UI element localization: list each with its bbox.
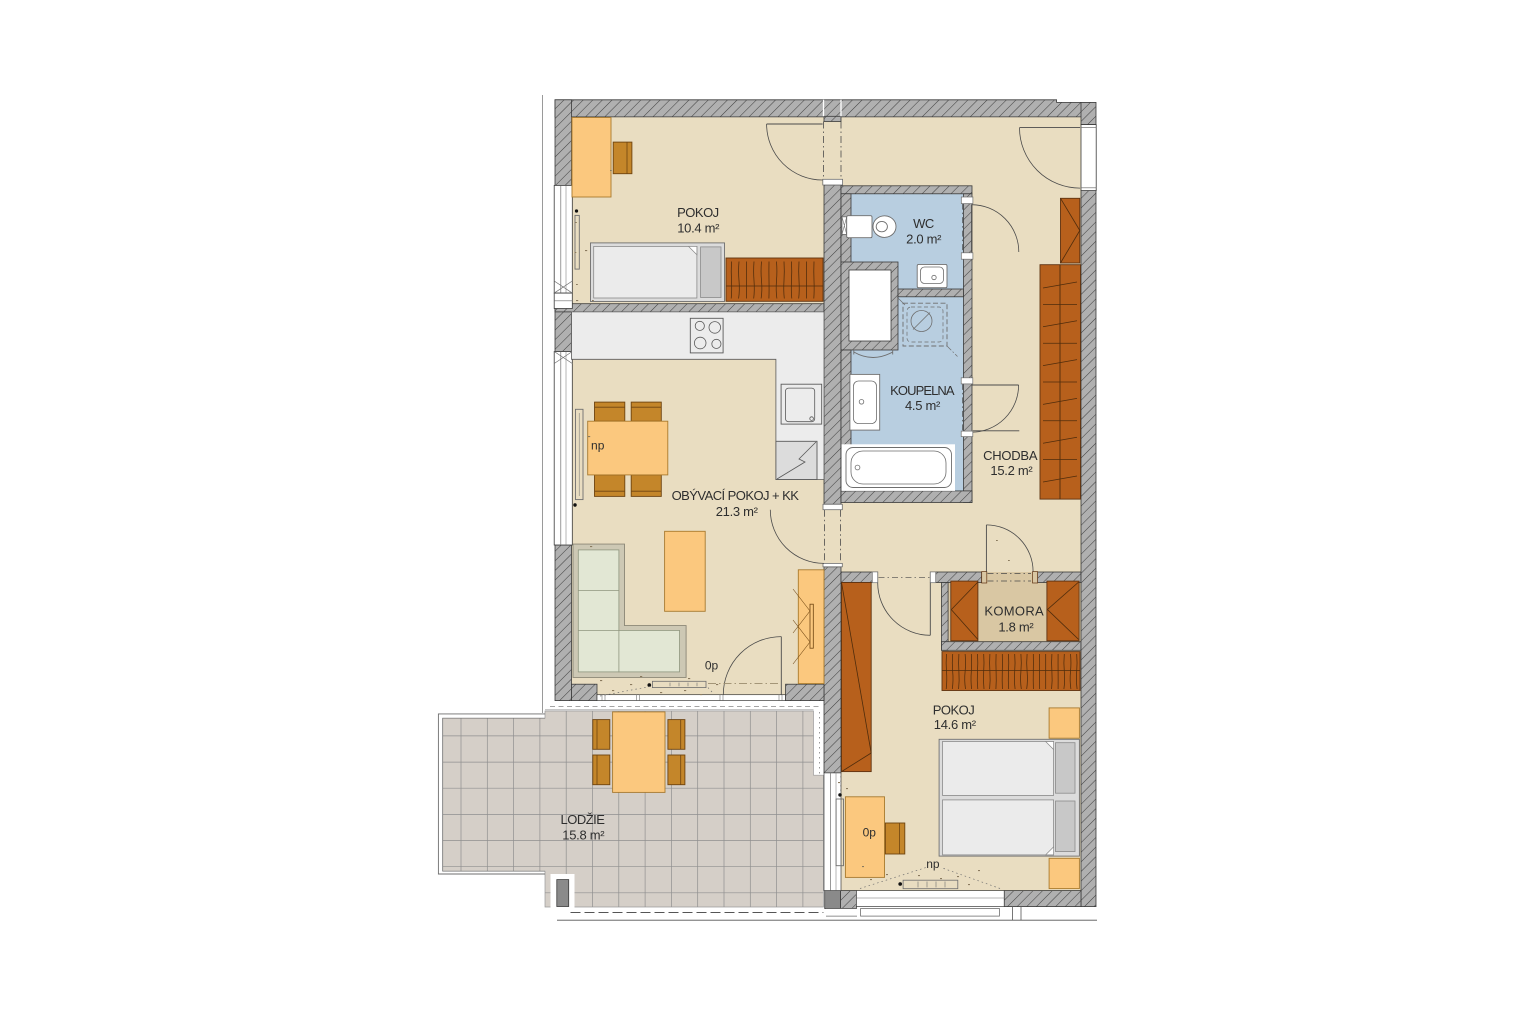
svg-text:np: np [591, 438, 605, 452]
svg-text:KOMORA: KOMORA [984, 604, 1044, 619]
svg-text:21.3 m²: 21.3 m² [716, 504, 759, 519]
svg-text:0p: 0p [863, 825, 877, 839]
svg-text:15.2 m²: 15.2 m² [990, 463, 1033, 478]
svg-text:np: np [926, 857, 940, 871]
svg-text:1.8 m²: 1.8 m² [998, 619, 1034, 634]
svg-text:CHODBA: CHODBA [983, 448, 1038, 463]
svg-text:POKOJ: POKOJ [933, 703, 975, 718]
svg-text:WC: WC [913, 216, 934, 231]
svg-text:KOUPELNA: KOUPELNA [890, 383, 955, 398]
svg-text:10.4 m²: 10.4 m² [677, 220, 720, 235]
svg-text:14.6 m²: 14.6 m² [934, 717, 977, 732]
svg-text:4.5 m²: 4.5 m² [905, 398, 941, 413]
svg-text:POKOJ: POKOJ [677, 205, 719, 220]
svg-text:OBÝVACÍ POKOJ + KK: OBÝVACÍ POKOJ + KK [672, 488, 800, 503]
svg-text:0p: 0p [705, 659, 719, 673]
svg-text:2.0 m²: 2.0 m² [906, 232, 942, 247]
svg-text:LODŽIE: LODŽIE [561, 812, 606, 827]
svg-text:15.8 m²: 15.8 m² [562, 827, 605, 842]
